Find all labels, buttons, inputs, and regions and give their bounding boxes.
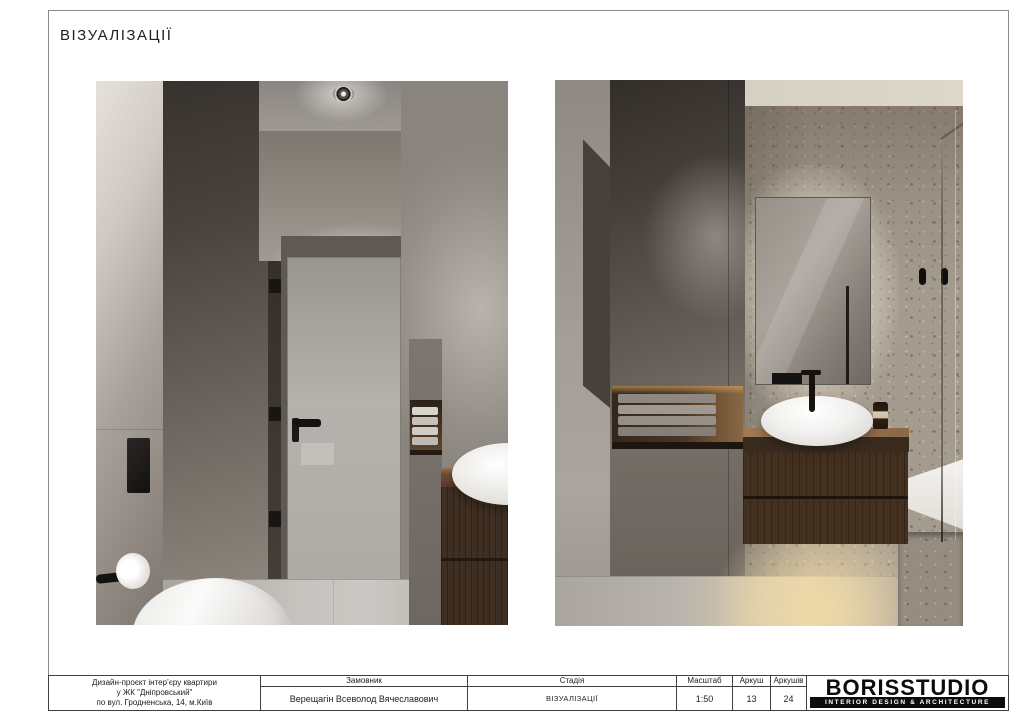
cabinet-side (409, 339, 442, 625)
logo-wordmark: BORISSTUDIO (826, 677, 990, 698)
side-wall (555, 80, 610, 626)
render-left-wc-view (96, 81, 508, 625)
door-light-reflection (301, 443, 334, 465)
mirror-reflected-faucet (772, 373, 802, 384)
towel (412, 427, 438, 435)
towel (618, 416, 716, 425)
bathtub-apron (898, 532, 963, 626)
drawer-seam (743, 496, 908, 499)
towel (412, 417, 438, 425)
architrave-recess (583, 128, 610, 408)
scale-label: Масштаб (676, 676, 732, 687)
door-handle (290, 416, 322, 442)
towel (618, 405, 716, 414)
sheet-total-label: Аркушів (770, 676, 806, 687)
vanity-drawers (441, 487, 508, 625)
stage-label: Стадія (467, 676, 676, 687)
shower-glass-highlight (955, 110, 956, 540)
ceiling-spotlight (333, 86, 354, 102)
towel (618, 394, 716, 403)
project-line: у ЖК "Дніпровський" (117, 688, 193, 698)
flush-plate (127, 438, 150, 493)
render-right-bathroom-view (555, 80, 963, 626)
niche-ledge (410, 450, 442, 455)
project-description: Дизайн-проєкт інтер’єру квартири у ЖК "Д… (49, 676, 260, 710)
floor-seam (333, 580, 334, 625)
handle-lever (294, 419, 321, 427)
client-value: Верещагін Всеволод Вячеславович (260, 687, 467, 710)
page-title: ВІЗУАЛІЗАЦІЇ (60, 27, 172, 44)
project-line: по вул. Гродненська, 14, м.Київ (97, 698, 213, 708)
shower-glass-edge (941, 138, 943, 542)
drawer-seam (441, 558, 508, 561)
client-label: Замовник (260, 676, 467, 687)
scale-value: 1:50 (676, 687, 732, 710)
tile-seam (96, 429, 163, 430)
towel (618, 427, 716, 436)
stone-tile-wall (96, 81, 163, 625)
sheet-number-label: Аркуш (732, 676, 770, 687)
stage-value: ВІЗУАЛІЗАЦІЇ (467, 687, 676, 710)
sheet-total-value: 24 (770, 687, 806, 710)
title-block: Дизайн-проєкт інтер’єру квартири у ЖК "Д… (48, 675, 1009, 711)
vanity-drawers (743, 452, 908, 544)
paper-roll (116, 553, 150, 589)
mirror (755, 197, 871, 385)
sheet-number-value: 13 (732, 687, 770, 710)
towel-niche (410, 400, 442, 450)
faucet-body (809, 370, 815, 412)
project-line: Дизайн-проєкт інтер’єру квартири (92, 678, 217, 688)
wall-hook (919, 268, 926, 285)
towel (412, 407, 438, 415)
studio-logo: BORISSTUDIO INTERIOR DESIGN & ARCHITECTU… (806, 676, 1008, 710)
niche-ledge (612, 442, 743, 449)
logo-tagline: INTERIOR DESIGN & ARCHITECTURE (810, 697, 1005, 708)
drawing-sheet: ВІЗУАЛІЗАЦІЇ (0, 0, 1024, 724)
mirror-reflected-glass-edge (846, 286, 849, 385)
towel-niche (612, 386, 743, 442)
towel (412, 437, 438, 445)
niche-warm-light (612, 386, 743, 394)
faucet (801, 370, 827, 412)
soap-dispenser (873, 402, 888, 429)
